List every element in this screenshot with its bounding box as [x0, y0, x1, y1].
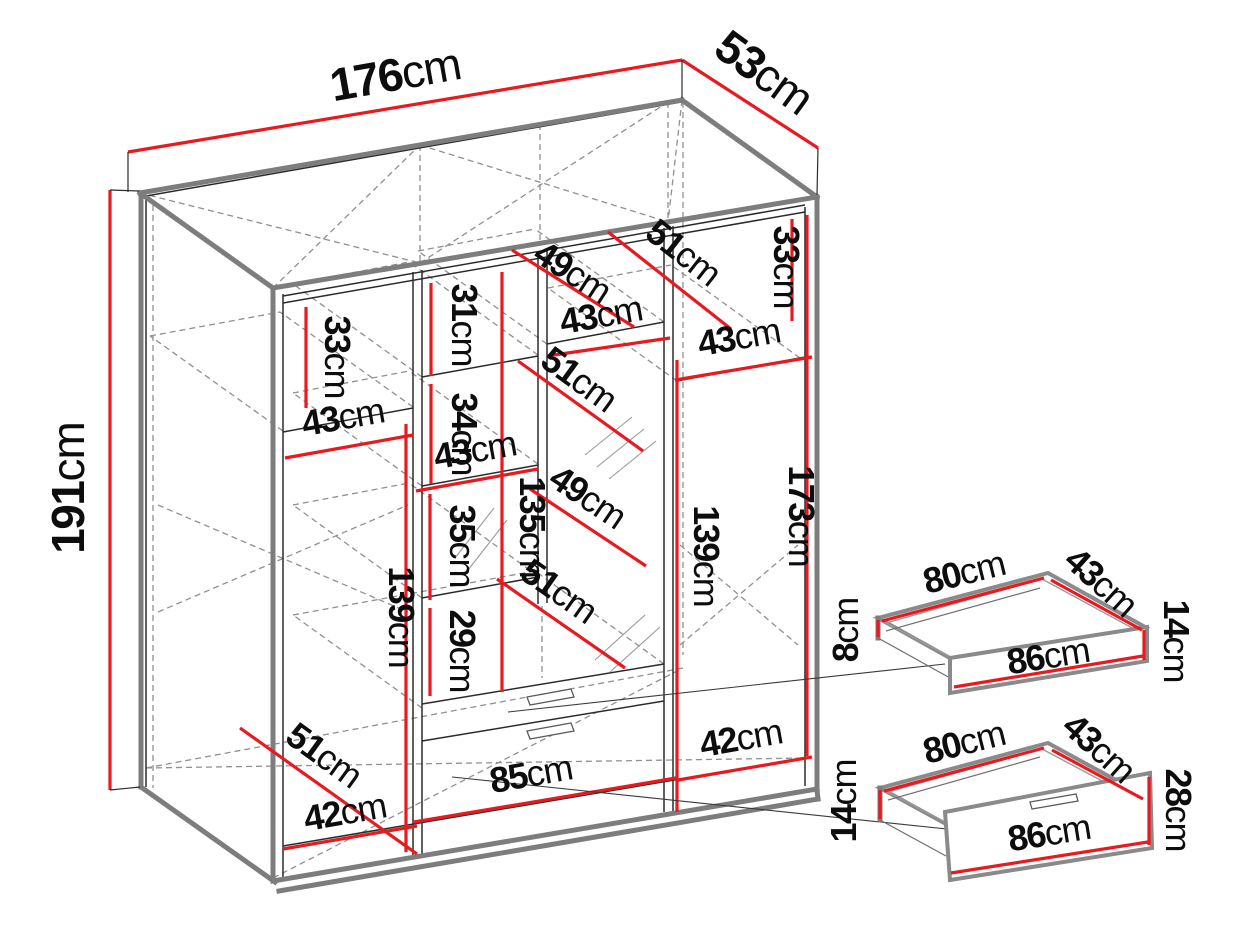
- dim-right-top-gap: 33cm: [766, 225, 807, 308]
- dim-drawer-small-front-height: 14cm: [1156, 599, 1197, 682]
- dim-mid-column-width: 43cm: [430, 422, 519, 477]
- dim-left-top-gap: 33cm: [317, 315, 358, 398]
- dim-drawer-large-front-height: 28cm: [1158, 768, 1199, 851]
- wardrobe-dimensions-diagram: 176cm 53cm 191cm 33cm 43cm 139cm 51cm 42…: [0, 0, 1260, 945]
- dim-right-top-width: 43cm: [694, 309, 783, 364]
- diagram-svg: 176cm 53cm 191cm 33cm 43cm 139cm 51cm 42…: [0, 0, 1260, 945]
- dim-right-inner-height: 173cm: [781, 465, 822, 567]
- dim-left-lower-height: 139cm: [381, 566, 422, 668]
- dim-overall-height: 191cm: [42, 422, 94, 554]
- drawer-handle-top: [527, 689, 574, 705]
- dim-left-shelf-width: 43cm: [298, 389, 387, 444]
- drawer-handle-bottom: [527, 723, 574, 739]
- dim-mid-gap-3: 35cm: [442, 504, 483, 587]
- dim-mid-depth-b: 49cm: [542, 456, 634, 536]
- dim-left-floor-depth: 51cm: [279, 714, 370, 796]
- dim-mid-right-height: 139cm: [686, 505, 727, 607]
- dim-drawer-large-back-height: 14cm: [823, 759, 864, 842]
- dim-mid-floor-width: 85cm: [486, 746, 575, 801]
- dim-overall-depth: 53cm: [706, 19, 824, 124]
- dim-mid-top-width: 43cm: [556, 287, 645, 342]
- dim-drawer-small-back-height: 8cm: [825, 598, 866, 663]
- dim-right-floor-width: 42cm: [696, 710, 785, 765]
- dim-mid-gap-1: 31cm: [444, 283, 485, 366]
- dimension-labels: 176cm 53cm 191cm 33cm 43cm 139cm 51cm 42…: [42, 19, 1199, 859]
- dim-mid-gap-4: 29cm: [442, 609, 483, 692]
